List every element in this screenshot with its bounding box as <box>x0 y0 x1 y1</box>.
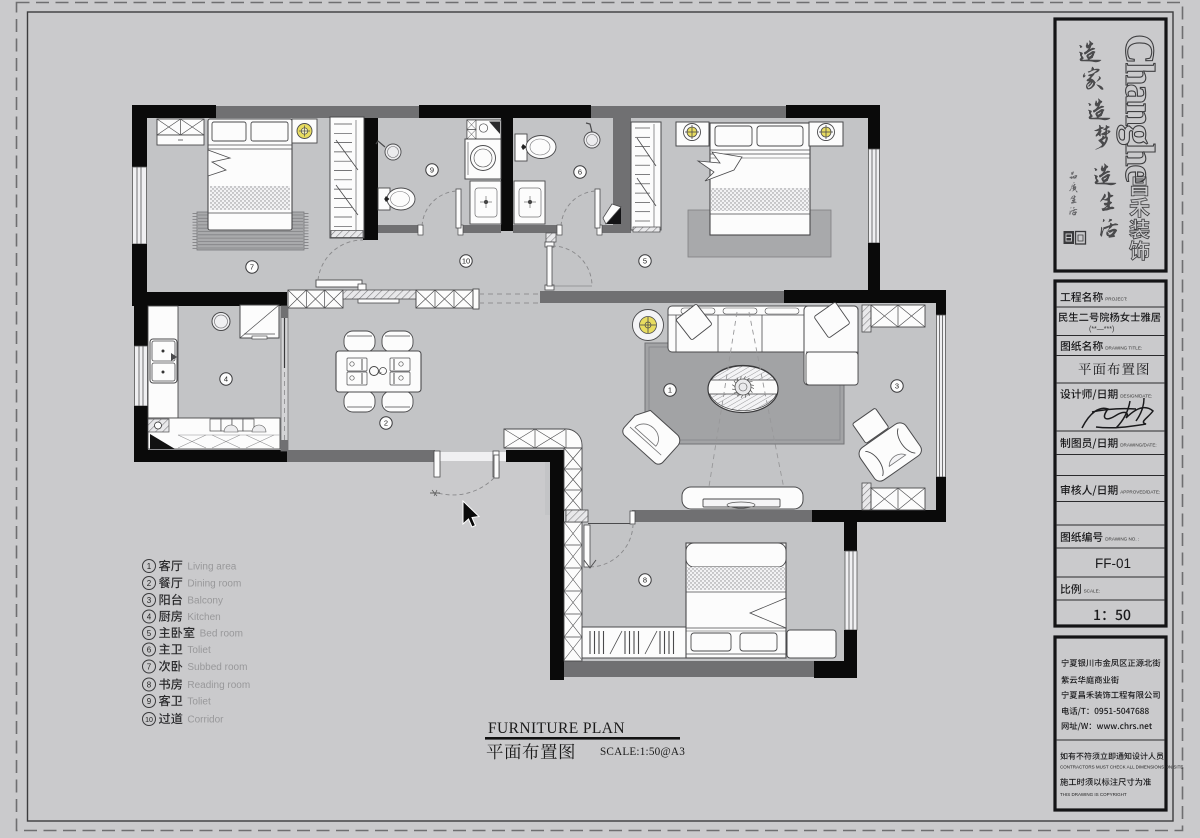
svg-text:6: 6 <box>578 168 582 177</box>
svg-text:2: 2 <box>147 579 152 588</box>
svg-text:DRAWING TITLE:: DRAWING TITLE: <box>1105 346 1142 351</box>
svg-text:Subbed room: Subbed room <box>187 662 247 673</box>
svg-text:DRAWING/DATE:: DRAWING/DATE: <box>1120 443 1157 448</box>
svg-text:8: 8 <box>643 576 647 585</box>
svg-text:Bed room: Bed room <box>200 629 243 640</box>
svg-text:CONTRACTORS MUST CHECK ALL DIM: CONTRACTORS MUST CHECK ALL DIMENSIONS ON… <box>1060 765 1183 770</box>
svg-text:4: 4 <box>147 613 152 622</box>
svg-text:DRAWING NO. :: DRAWING NO. : <box>1105 537 1139 542</box>
svg-text:Toliet: Toliet <box>187 645 211 656</box>
svg-text:FF-01: FF-01 <box>1095 556 1131 571</box>
svg-text:Reading room: Reading room <box>187 680 250 691</box>
svg-text:1: 1 <box>668 386 672 395</box>
svg-text:10: 10 <box>462 257 470 266</box>
svg-text:3: 3 <box>147 596 152 605</box>
svg-text:5: 5 <box>147 629 152 638</box>
svg-text:6: 6 <box>147 646 152 655</box>
svg-text:DESIGN/DATE:: DESIGN/DATE: <box>1120 394 1152 399</box>
svg-text:10: 10 <box>145 717 153 724</box>
svg-text:w: w <box>379 370 382 375</box>
svg-text:Kitchen: Kitchen <box>187 612 220 623</box>
svg-text:3: 3 <box>895 382 899 391</box>
svg-text:7: 7 <box>250 263 254 272</box>
svg-text:Living area: Living area <box>187 562 236 573</box>
svg-text:SCALE:1:50@A3: SCALE:1:50@A3 <box>600 746 685 758</box>
svg-text:4: 4 <box>224 375 228 384</box>
svg-text:7: 7 <box>147 663 152 672</box>
svg-text:5: 5 <box>643 257 647 266</box>
svg-text:9: 9 <box>430 166 434 175</box>
svg-text:8: 8 <box>147 681 152 690</box>
svg-text:APPROVED/DATE:: APPROVED/DATE: <box>1120 490 1160 495</box>
svg-text:9: 9 <box>147 697 152 706</box>
svg-text:Dining room: Dining room <box>187 579 241 590</box>
svg-text:1: 1 <box>147 562 152 571</box>
svg-text:FURNITURE PLAN: FURNITURE PLAN <box>488 720 625 737</box>
svg-text:Toliet: Toliet <box>187 697 211 708</box>
svg-text:Balcony: Balcony <box>187 596 223 607</box>
svg-text:(**—***): (**—***) <box>1089 326 1114 333</box>
svg-text:PROJECT:: PROJECT: <box>1105 297 1127 302</box>
svg-text:SCALE:: SCALE: <box>1084 589 1100 594</box>
svg-text:THIS DRAWING IS COPYRIGHT: THIS DRAWING IS COPYRIGHT <box>1060 792 1127 797</box>
svg-text:Corridor: Corridor <box>187 715 224 726</box>
svg-text:2: 2 <box>384 419 388 428</box>
